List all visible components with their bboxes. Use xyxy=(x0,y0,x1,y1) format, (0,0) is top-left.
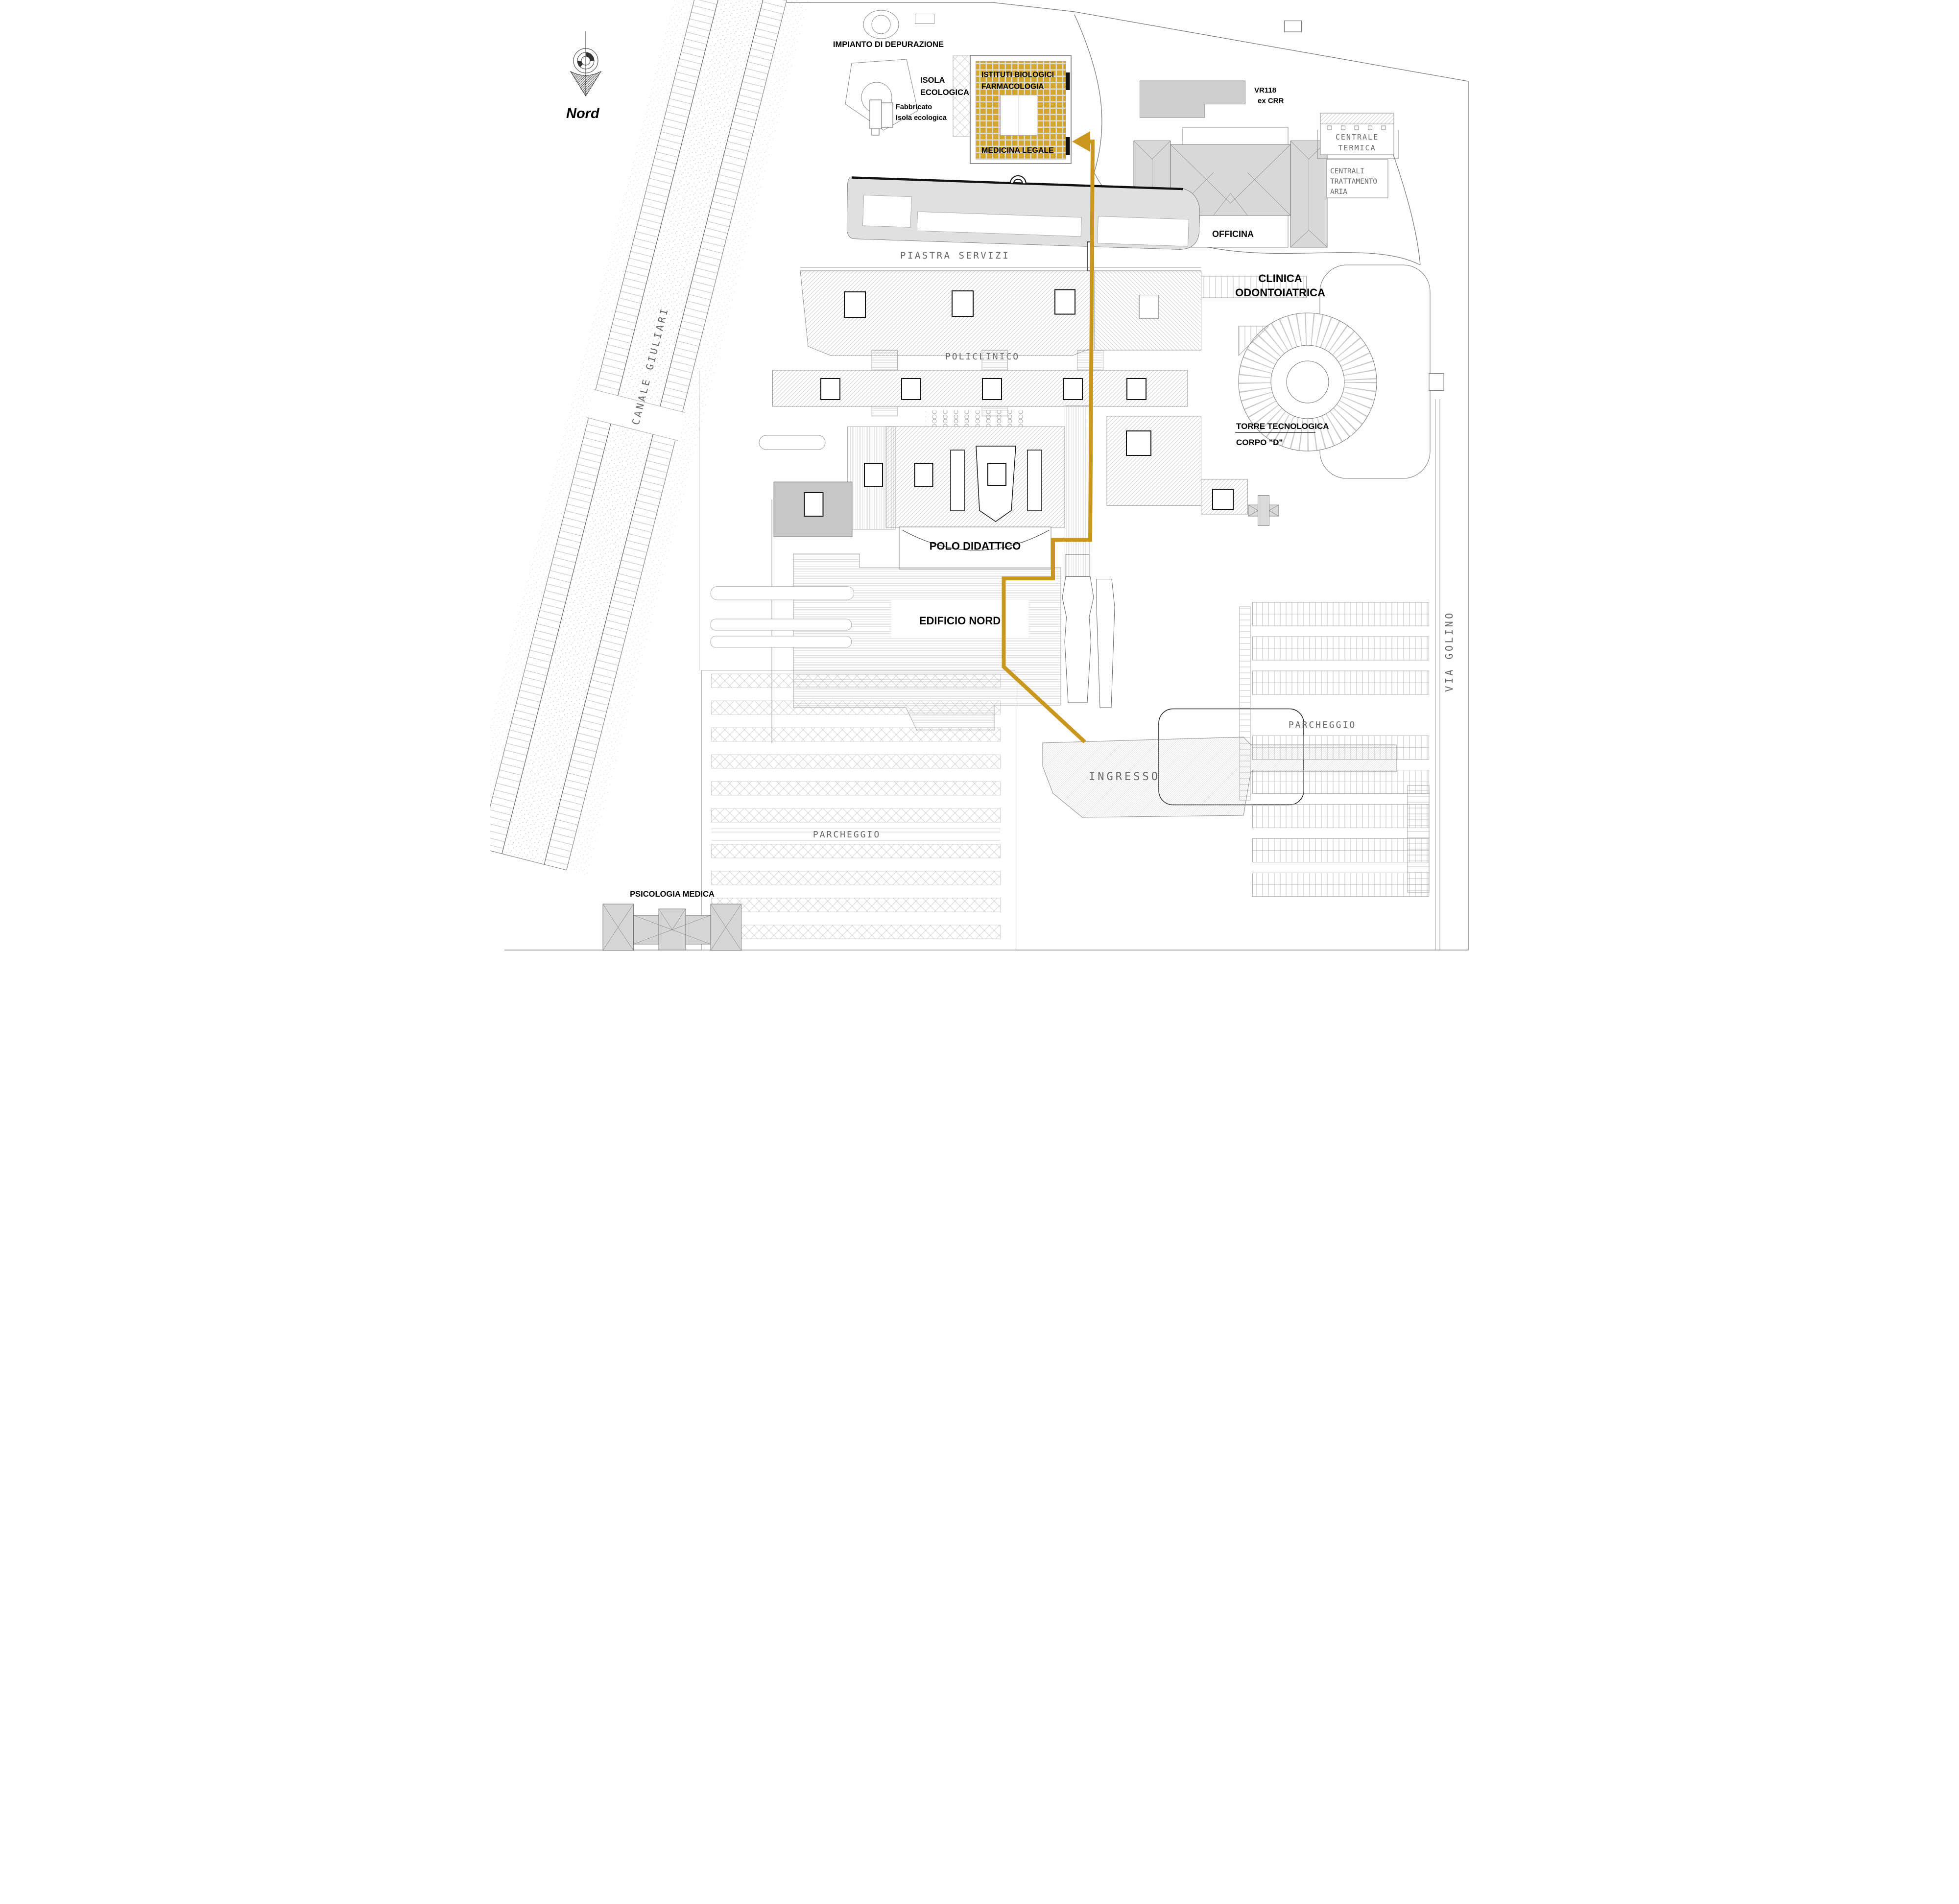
parking-east: PARCHEGGIO xyxy=(1240,602,1429,897)
label-officina: OFFICINA xyxy=(1212,229,1254,239)
label-centrali-1: CENTRALI xyxy=(1330,167,1364,175)
label-istituti-1: ISTITUTI BIOLOGICI xyxy=(981,71,1054,79)
label-istituti-2: FARMACOLOGIA xyxy=(981,83,1044,91)
building-towers-east xyxy=(1062,555,1115,708)
building-centrale-termica: CENTRALE TERMICA xyxy=(1317,113,1398,159)
label-ingresso: INGRESSO xyxy=(1089,771,1160,783)
road-centrale xyxy=(1393,155,1420,265)
label-vr118-2: ex CRR xyxy=(1258,97,1284,105)
site-plan-map: CANALE GIULIARI Nord IMPIANTO DI DEPURAZ… xyxy=(490,0,1469,952)
label-fabbricato-2: Isola ecologica xyxy=(896,114,947,122)
label-centrali-2: TRATTAMENTO xyxy=(1330,178,1377,186)
building-polo-didattico: POLO DIDATTICO xyxy=(899,527,1051,569)
label-impianto-depurazione: IMPIANTO DI DEPURAZIONE xyxy=(833,40,944,49)
label-centrale-2: TERMICA xyxy=(1338,143,1376,152)
label-isola-1: ISOLA xyxy=(920,76,945,85)
label-parcheggio-east: PARCHEGGIO xyxy=(1289,720,1356,730)
label-psicologia-medica: PSICOLOGIA MEDICA xyxy=(630,890,715,899)
via-golino-road xyxy=(1435,399,1440,950)
label-centrali-3: ARIA xyxy=(1330,188,1347,196)
stairs-mark-bottom xyxy=(1066,137,1070,155)
building-cross xyxy=(1248,496,1279,526)
colonnade-dots xyxy=(926,410,1028,427)
label-clinica-2: ODONTOIATRICA xyxy=(1235,286,1325,299)
building-psicologia-medica xyxy=(603,904,741,951)
north-compass-icon xyxy=(571,31,601,96)
stairs-mark-top xyxy=(1066,72,1070,90)
label-via-golino: VIA GOLINO xyxy=(1443,611,1455,691)
site-plan-page: CANALE GIULIARI Nord IMPIANTO DI DEPURAZ… xyxy=(490,0,1469,952)
label-polo-didattico: POLO DIDATTICO xyxy=(930,540,1021,552)
label-clinica-1: CLINICA xyxy=(1258,272,1302,285)
building-piastra-servizi xyxy=(800,267,1201,356)
building-vr118 xyxy=(1140,81,1245,118)
label-medicina-legale: MEDICINA LEGALE xyxy=(981,146,1054,155)
label-vr118-1: VR118 xyxy=(1254,86,1276,95)
label-centrale-1: CENTRALE xyxy=(1336,133,1379,142)
label-fabbricato-1: Fabbricato xyxy=(896,103,932,111)
structure-southeast xyxy=(1408,785,1429,892)
boundary-hut xyxy=(1285,21,1302,32)
route-arrow-icon xyxy=(1072,131,1090,152)
compass-label: Nord xyxy=(566,106,600,121)
label-parcheggio-south: PARCHEGGIO xyxy=(813,830,881,840)
label-edificio-nord: EDIFICIO NORD xyxy=(919,615,1001,627)
label-piastra-servizi: PIASTRA SERVIZI xyxy=(900,250,1010,261)
building-centrali-trattamento-aria: CENTRALI TRATTAMENTO ARIA xyxy=(1327,160,1388,198)
fabbricato-isola-building xyxy=(870,100,893,135)
label-torre-2: CORPO "D" xyxy=(1236,438,1283,447)
label-torre-1: TORRE TECNOLOGICA xyxy=(1236,422,1329,431)
building-istituti-biologici-highlighted: ISTITUTI BIOLOGICI FARMACOLOGIA MEDICINA… xyxy=(970,55,1071,164)
label-isola-2: ECOLOGICA xyxy=(920,88,969,97)
